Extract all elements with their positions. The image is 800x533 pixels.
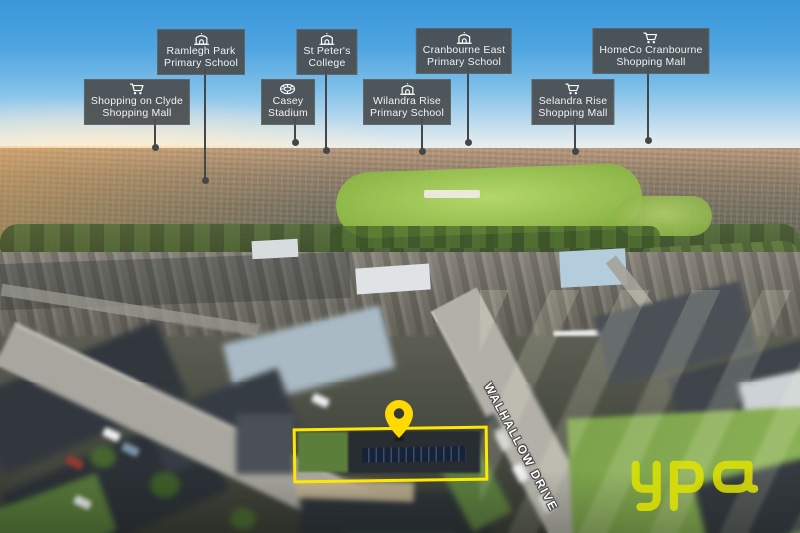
callout-line2: Shopping Mall <box>616 57 685 69</box>
leader-dot <box>465 139 472 146</box>
callout-cranbourne-east: Cranbourne EastPrimary School <box>416 28 512 74</box>
tilt-shift-blur <box>0 322 800 382</box>
school-icon <box>455 32 472 44</box>
leader-line <box>647 67 649 140</box>
callout-line2: Shopping Mall <box>538 108 607 120</box>
callout-selandra-rise: Selandra RiseShopping Mall <box>531 79 614 125</box>
callout-homeco-cranbourne: HomeCo CranbourneShopping Mall <box>592 28 709 74</box>
callout-line2: Stadium <box>268 108 308 120</box>
leader-dot <box>152 144 159 151</box>
leader-line <box>325 68 327 150</box>
callout-ramlegh-park: Ramlegh ParkPrimary School <box>157 29 245 75</box>
leader-dot <box>419 148 426 155</box>
stadium-icon <box>279 83 296 95</box>
callout-casey-stadium: CaseyStadium <box>261 79 315 125</box>
leader-line <box>204 68 206 180</box>
school-icon <box>318 33 335 45</box>
leader-line <box>467 67 469 142</box>
callout-line2: Shopping Mall <box>102 108 171 120</box>
cart-icon <box>565 83 582 95</box>
callout-line2: Primary School <box>164 58 238 70</box>
white-roof <box>355 263 431 294</box>
white-roof <box>252 239 299 259</box>
callout-line2: Primary School <box>427 57 501 69</box>
callout-line2: Primary School <box>370 108 444 120</box>
callout-st-peters-college: St Peter'sCollege <box>296 29 357 75</box>
property-pin-icon <box>384 399 414 444</box>
leader-dot <box>572 148 579 155</box>
aerial-photo: Shopping on ClydeShopping MallRamlegh Pa… <box>0 0 800 533</box>
park-edge-trees <box>330 226 660 248</box>
leader-dot <box>292 139 299 146</box>
cart-icon <box>128 83 145 95</box>
callout-line2: College <box>308 58 345 70</box>
callout-shopping-on-clyde: Shopping on ClydeShopping Mall <box>84 79 190 125</box>
cart-icon <box>642 32 659 44</box>
leader-dot <box>202 177 209 184</box>
ypa-watermark-logo: ypa <box>628 456 760 512</box>
school-icon <box>193 33 210 45</box>
callout-wilandra-rise: Wilandra RisePrimary School <box>363 79 451 125</box>
leader-dot <box>323 147 330 154</box>
clubhouse-roof <box>424 190 480 198</box>
school-icon <box>399 83 416 95</box>
leader-dot <box>645 137 652 144</box>
